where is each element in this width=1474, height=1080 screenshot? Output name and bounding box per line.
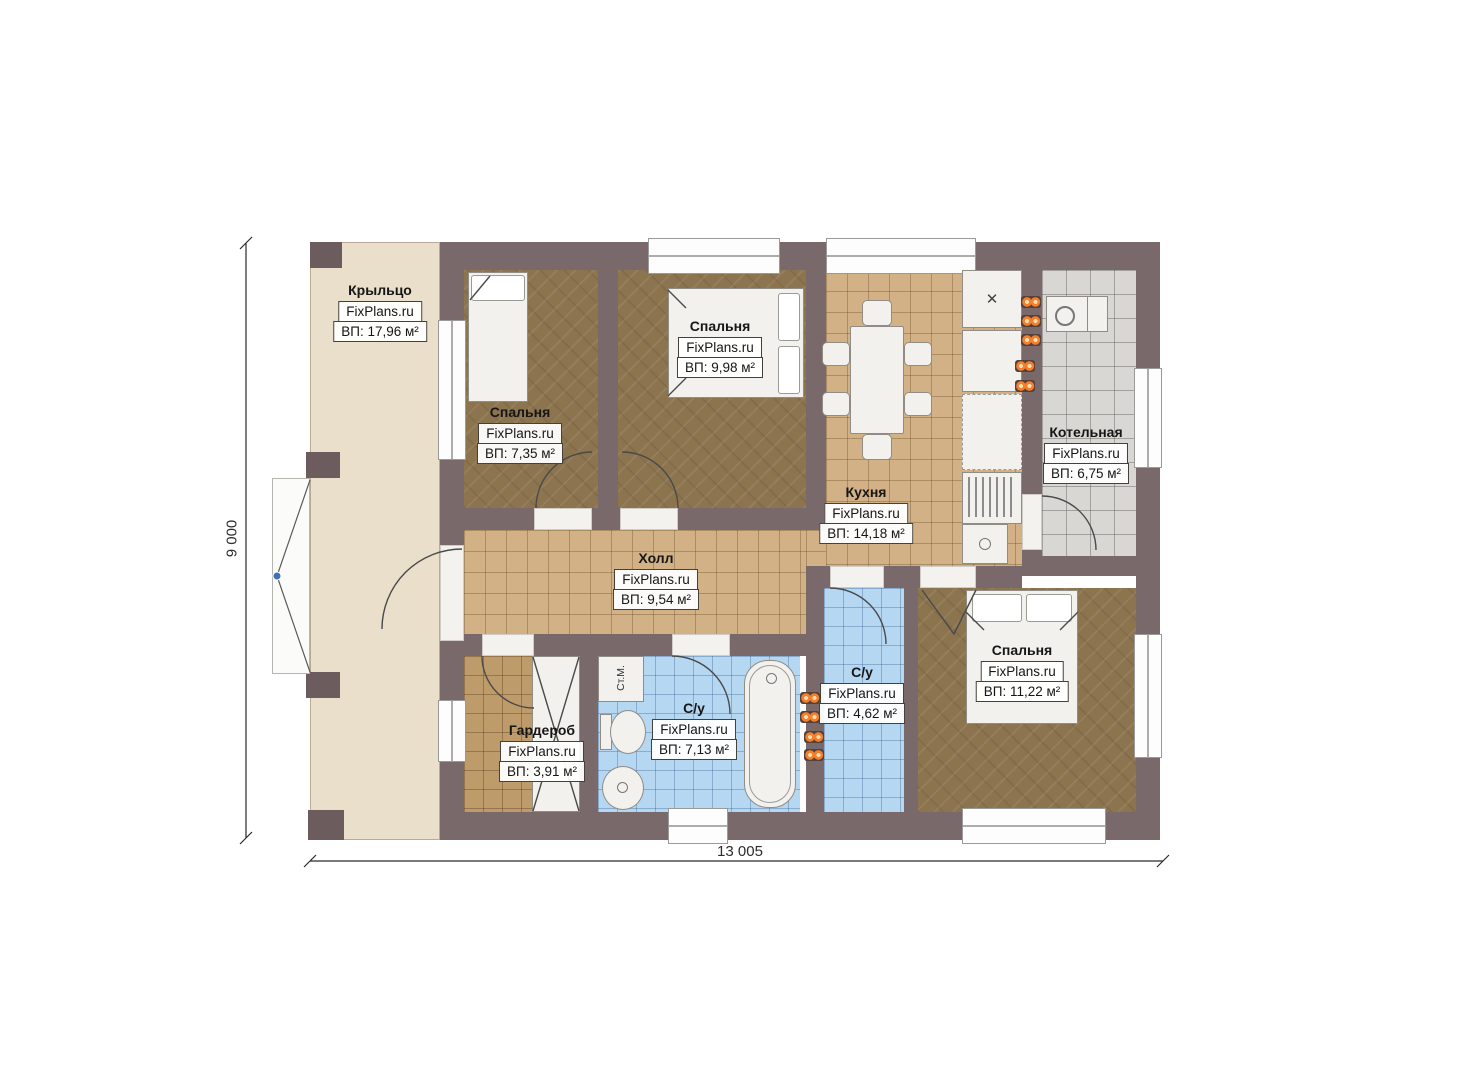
radiator [804, 731, 824, 743]
radiator [1021, 296, 1041, 308]
dimension-label-height: 9 000 [224, 507, 241, 571]
floor-plan-canvas: ✕ Ст.М. [0, 0, 1474, 1080]
room-label-porch: Крыльцо FixPlans.ru ВП: 17,96 м² [333, 282, 427, 342]
radiator [800, 711, 820, 723]
room-area: ВП: 17,96 м² [333, 321, 427, 342]
entrance-steps [277, 480, 310, 672]
radiator [1015, 380, 1035, 392]
room-name: Спальня [992, 642, 1052, 658]
room-brand: FixPlans.ru [1044, 443, 1128, 464]
dimension-label-width: 13 005 [700, 843, 780, 860]
room-area: ВП: 7,35 м² [477, 443, 563, 464]
plan-linework [0, 0, 1474, 1080]
radiator [804, 749, 824, 761]
room-area: ВП: 7,13 м² [651, 739, 737, 760]
room-name: Холл [638, 550, 673, 566]
room-brand: FixPlans.ru [338, 301, 422, 322]
room-label-boiler: Котельная FixPlans.ru ВП: 6,75 м² [1043, 424, 1129, 484]
radiator [800, 692, 820, 704]
door-arc-bathroom-462 [830, 588, 886, 644]
door-leaf-bedroom-1122 [922, 590, 976, 634]
room-area: ВП: 3,91 м² [499, 761, 585, 782]
room-area: ВП: 4,62 м² [819, 703, 905, 724]
door-arc-wardrobe [482, 656, 534, 708]
room-label-wardrobe: Гардероб FixPlans.ru ВП: 3,91 м² [499, 722, 585, 782]
room-name: Крыльцо [348, 282, 412, 298]
room-label-bedroom-998: Спальня FixPlans.ru ВП: 9,98 м² [677, 318, 763, 378]
room-name: Спальня [690, 318, 750, 334]
dimension-line-height [240, 237, 252, 844]
room-brand: FixPlans.ru [500, 741, 584, 762]
room-name: Гардероб [509, 722, 575, 738]
room-label-hall: Холл FixPlans.ru ВП: 9,54 м² [613, 550, 699, 610]
radiator [1021, 315, 1041, 327]
radiator [1015, 360, 1035, 372]
room-area: ВП: 9,54 м² [613, 589, 699, 610]
room-label-kitchen: Кухня FixPlans.ru ВП: 14,18 м² [819, 484, 913, 544]
door-arc-entrance [382, 549, 462, 629]
room-area: ВП: 6,75 м² [1043, 463, 1129, 484]
entrance-point [273, 572, 281, 580]
room-area: ВП: 9,98 м² [677, 357, 763, 378]
room-brand: FixPlans.ru [820, 683, 904, 704]
room-brand: FixPlans.ru [678, 337, 762, 358]
room-area: ВП: 11,22 м² [976, 681, 1069, 702]
room-label-bathroom-462: С/у FixPlans.ru ВП: 4,62 м² [819, 664, 905, 724]
room-name: Кухня [846, 484, 887, 500]
room-brand: FixPlans.ru [478, 423, 562, 444]
door-arc-boiler [1042, 496, 1096, 550]
door-arc-bedroom-998 [622, 452, 678, 508]
radiator [1021, 334, 1041, 346]
room-brand: FixPlans.ru [652, 719, 736, 740]
room-name: Спальня [490, 404, 550, 420]
room-name: С/у [851, 664, 873, 680]
room-name: Котельная [1049, 424, 1122, 440]
room-label-bedroom-735: Спальня FixPlans.ru ВП: 7,35 м² [477, 404, 563, 464]
room-area: ВП: 14,18 м² [819, 523, 913, 544]
room-brand: FixPlans.ru [980, 661, 1064, 682]
room-name: С/у [683, 700, 705, 716]
room-label-bathroom-713: С/у FixPlans.ru ВП: 7,13 м² [651, 700, 737, 760]
room-brand: FixPlans.ru [614, 569, 698, 590]
room-label-bedroom-1122: Спальня FixPlans.ru ВП: 11,22 м² [976, 642, 1069, 702]
room-brand: FixPlans.ru [824, 503, 908, 524]
